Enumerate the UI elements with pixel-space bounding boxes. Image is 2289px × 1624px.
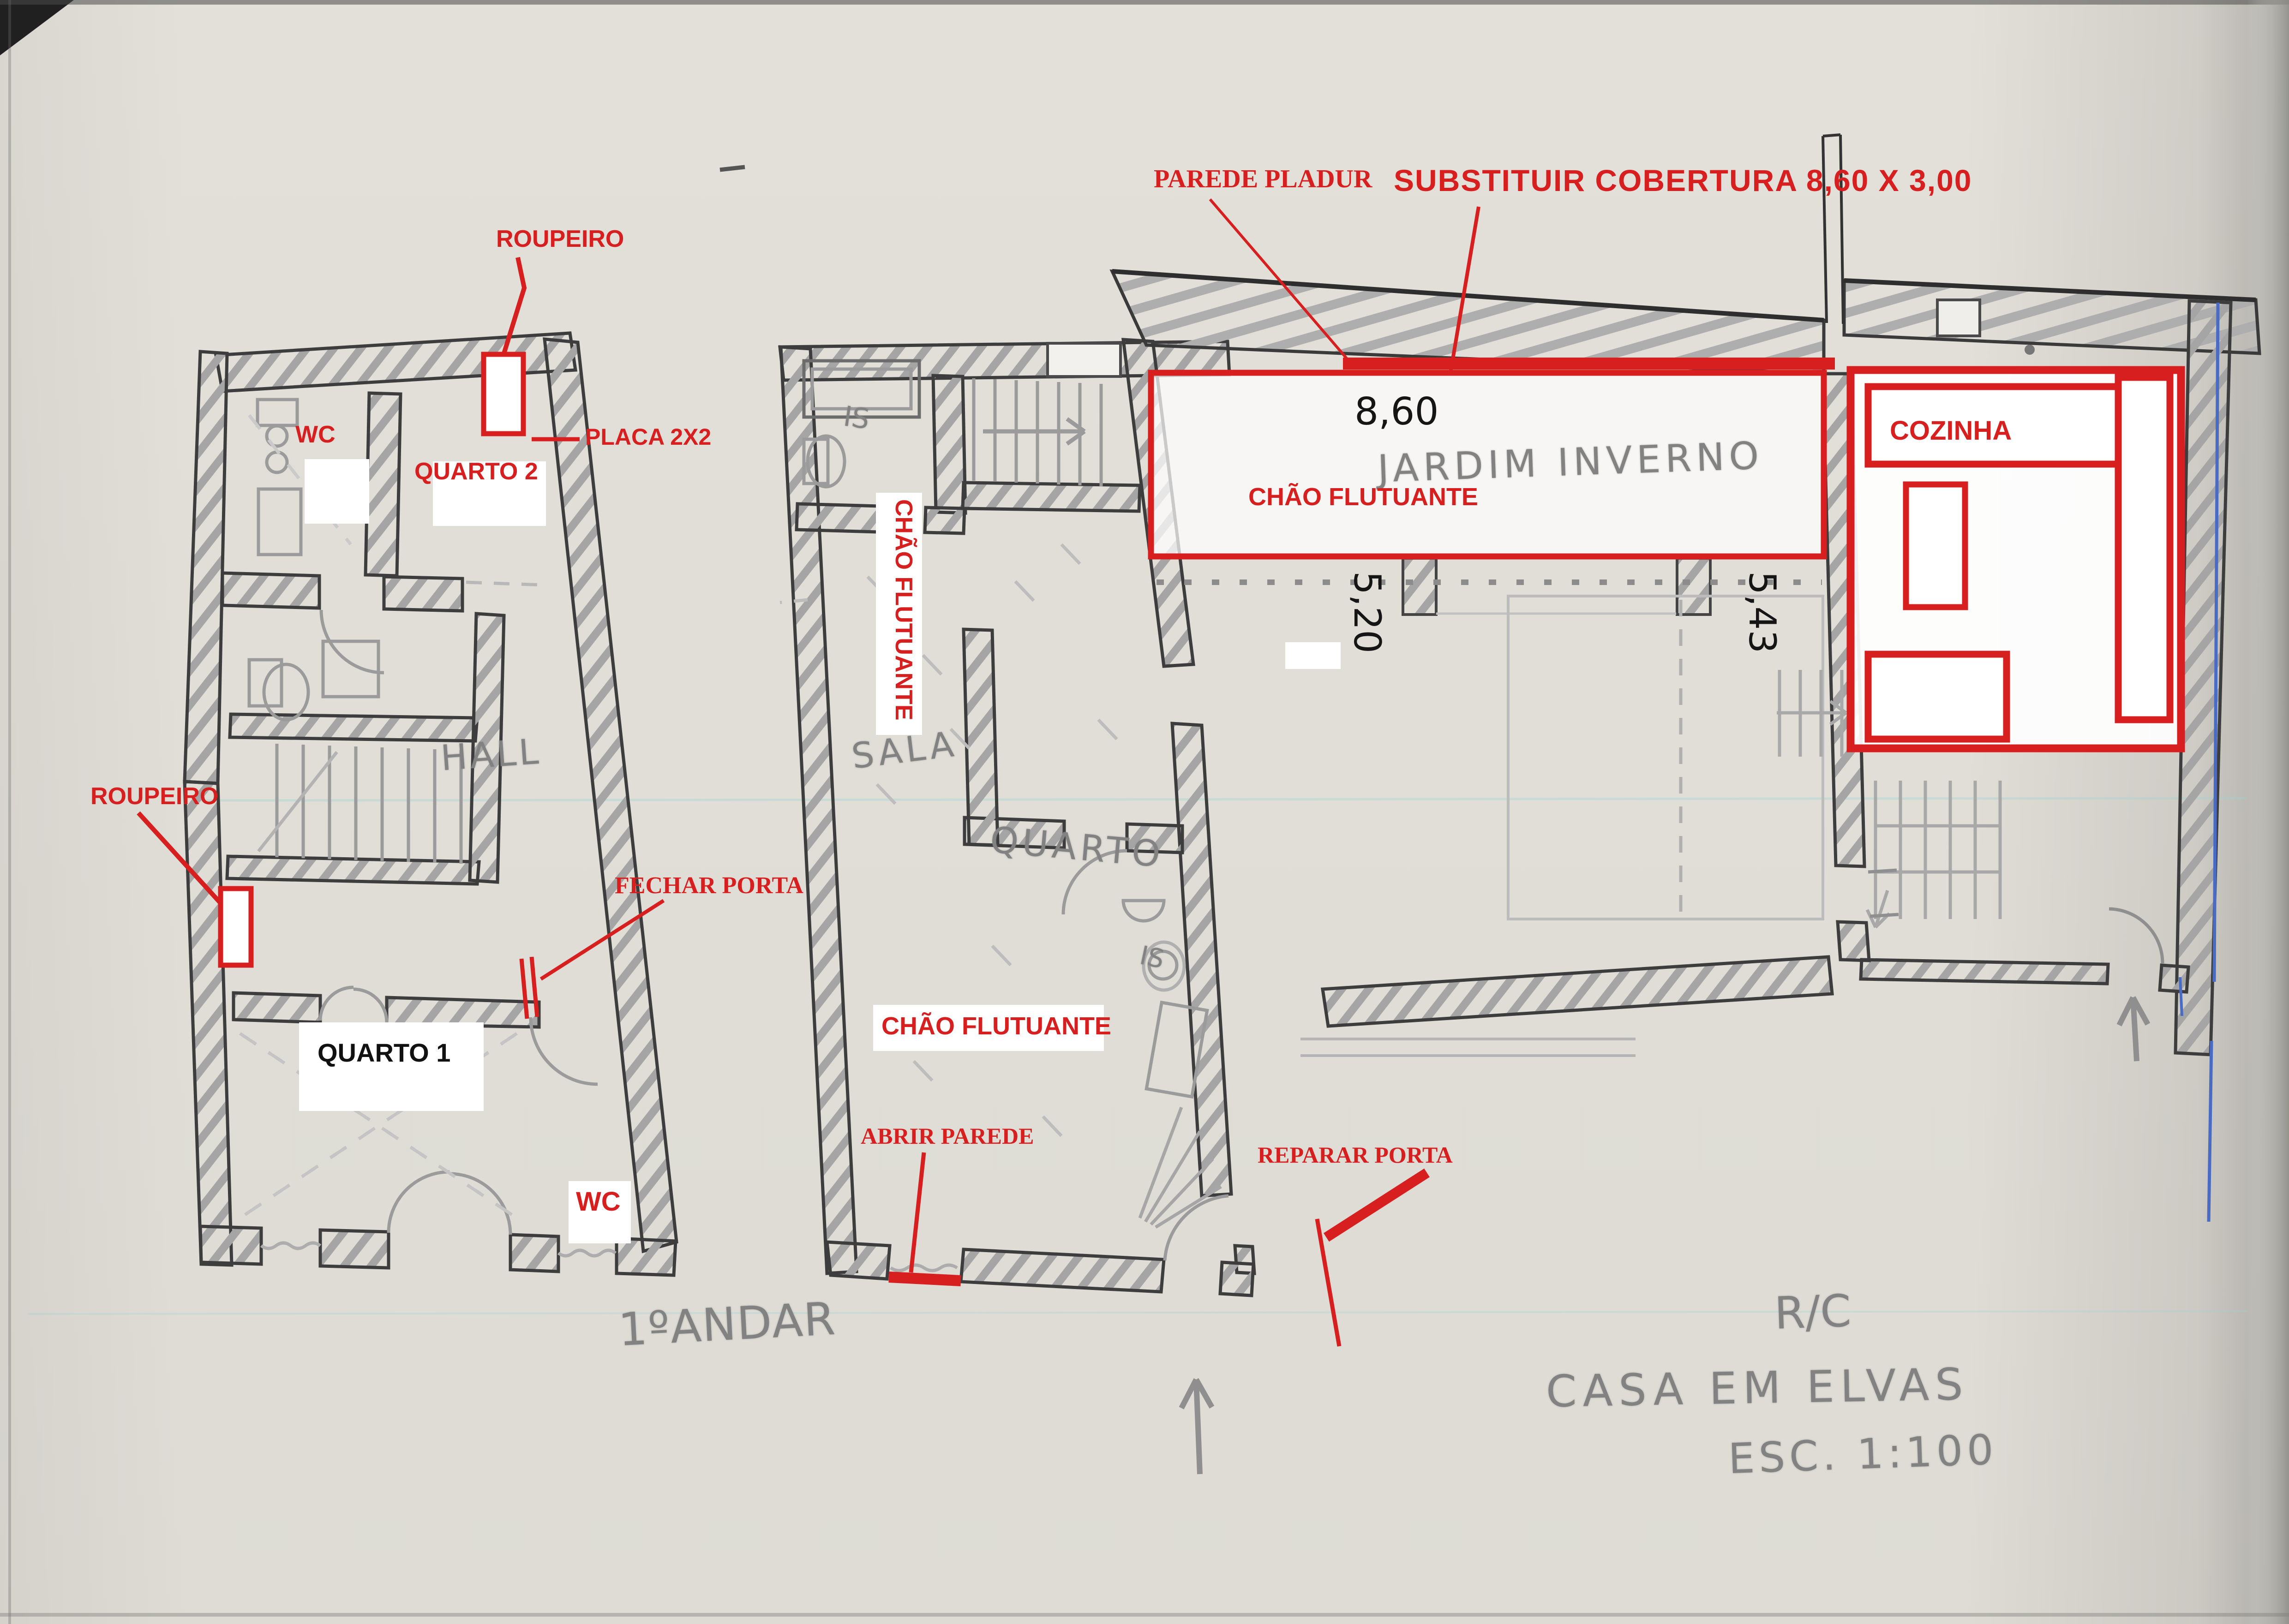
label-quarto1: QUARTO 1 [318,1040,450,1066]
label-cozinha: COZINHA [1890,418,2012,444]
dim-5-43: 5,43 [1744,571,1780,653]
label-roupeiro-top: ROUPEIRO [496,227,624,251]
reparar-porta-leader [1326,1173,1427,1237]
entrance-arrow-right [2119,997,2148,1061]
window-top-middle [1048,343,1121,376]
abrir-parede-marker [889,1277,961,1281]
dim-8-60: 8,60 [1354,393,1439,431]
first-floor-plan-details [240,400,616,1256]
titleblock-title: CASA EM ELVAS [1546,1363,1969,1414]
scanned-floor-plan-page: ROUPEIRO WC QUARTO 2 PLACA 2X2 HALL ROUP… [0,0,2289,1624]
white-patch-dim520 [1285,642,1341,669]
label-hall: HALL [440,734,543,776]
label-chao-flutuante-jardim: CHÃO FLUTUANTE [1248,484,1478,509]
label-placa-2x2: PLACA 2X2 [585,425,711,448]
label-fechar-porta: FECHAR PORTA [615,874,803,898]
label-chao-flutuante-sala: CHÃO FLUTUANTE [881,1014,1111,1039]
roupeiro-top-marker [484,354,523,434]
entrance-arrow-mid [1181,1379,1212,1474]
label-chao-flutuante-corridor: CHÃO FLUTUANTE [892,499,916,721]
caption-first-floor: 1ºANDAR [617,1296,837,1353]
label-roupeiro-left: ROUPEIRO [90,784,218,808]
label-wc-top: WC [295,423,336,447]
label-wc-bottom: WC [576,1188,621,1215]
label-reparar-porta: REPARAR PORTA [1258,1143,1453,1166]
white-patch-wc-top [305,459,369,524]
label-abrir-parede: ABRIR PAREDE [861,1124,1034,1147]
abrir-parede-leader [911,1152,924,1272]
label-substituir-cobertura: SUBSTITUIR COBERTURA 8,60 X 3,00 [1394,165,1972,196]
titleblock-floor: R/C [1774,1289,1852,1336]
dim-5-20: 5,20 [1348,571,1385,653]
label-is-top: IS [842,402,871,433]
roupeiro-left-marker [221,889,251,965]
titleblock-scale: ESC. 1:100 [1728,1429,1998,1480]
label-quarto2: QUARTO 2 [414,460,538,484]
label-parede-pladur: PAREDE PLADUR [1154,166,1372,192]
